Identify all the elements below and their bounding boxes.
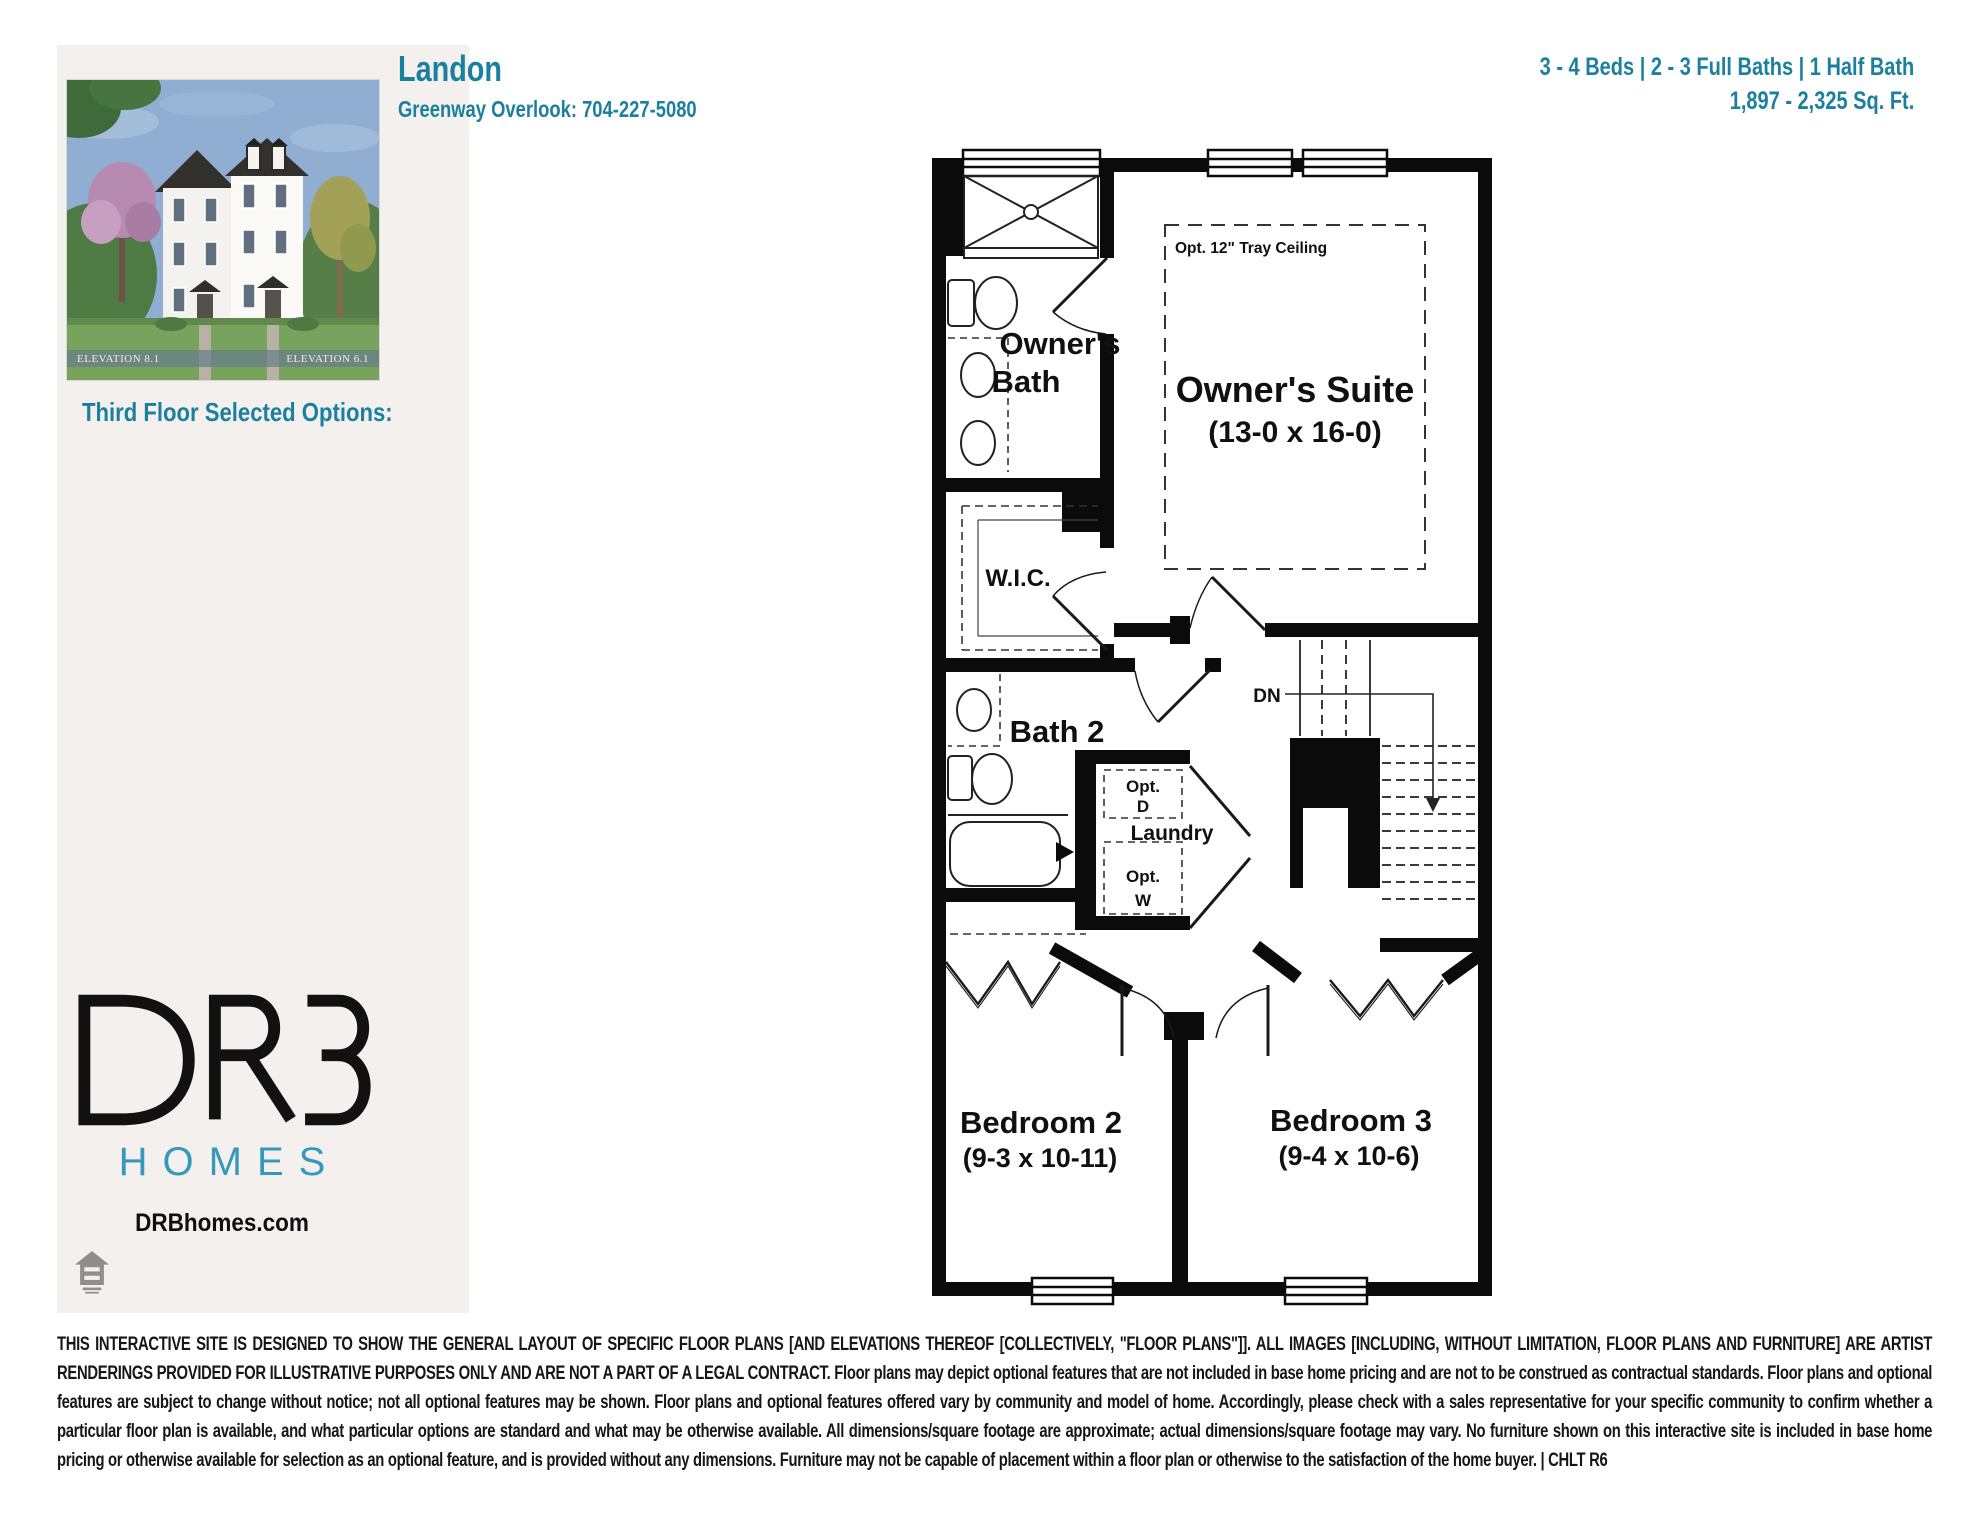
bath2-sink [948,674,1000,746]
owners-suite-dims: (13-0 x 16-0) [1208,416,1381,449]
owners-suite-label: Owner's Suite [1176,369,1415,410]
title-block: Landon Greenway Overlook: 704-227-5080 [398,48,771,123]
flyer-page: ELEVATION 8.1 ELEVATION 6.1 Third Floor … [0,0,1988,1536]
sidebar-panel: ELEVATION 8.1 ELEVATION 6.1 Third Floor … [57,45,469,1313]
bath2-tub [950,822,1074,886]
floor-plan: Owner's Bath Opt. 12" Tray Ceiling Owner… [900,140,1512,1310]
legal-disclaimer: THIS INTERACTIVE SITE IS DESIGNED TO SHO… [57,1330,1932,1475]
shower [964,176,1098,258]
specs-beds-baths: 3 - 4 Beds | 2 - 3 Full Baths | 1 Half B… [1539,50,1914,84]
owners-bath-label-2: Bath [992,364,1061,399]
elevation-rendering-image: ELEVATION 8.1 ELEVATION 6.1 [66,79,380,381]
laundry-opt-w-2: W [1135,891,1152,910]
elevation-left-label: ELEVATION 8.1 [77,353,160,365]
specs-sqft: 1,897 - 2,325 Sq. Ft. [1539,84,1914,118]
bedroom2-dims: (9-3 x 10-11) [963,1143,1118,1173]
owners-suite-door [1190,577,1265,630]
stairs-dn-label: DN [1253,686,1280,707]
stairs-treads [1382,746,1476,899]
elevation-right-label: ELEVATION 6.1 [286,353,369,365]
logo-website: DRBhomes.com [82,1209,363,1238]
stairs-upper-flight [1300,640,1370,736]
elevation-label-strip: ELEVATION 8.1 ELEVATION 6.1 [67,350,379,367]
owners-bath-door [1053,258,1107,334]
bedroom3-dims: (9-4 x 10-6) [1278,1141,1419,1171]
bath2-label: Bath 2 [1010,714,1105,749]
bedroom2-closet-bifold [946,962,1060,1004]
community-phone: Greenway Overlook: 704-227-5080 [398,96,697,123]
bath2-door [1135,670,1210,722]
bath2-toilet [948,754,1012,804]
bedroom3-door [1216,985,1268,1056]
plan-name: Landon [398,48,697,90]
tray-ceiling-label: Opt. 12" Tray Ceiling [1175,240,1327,257]
laundry-label: Laundry [1131,822,1214,845]
laundry-opt-d-2: D [1137,797,1149,816]
wic-label: W.I.C. [985,565,1050,592]
bedroom2-label: Bedroom 2 [960,1105,1122,1140]
drb-logo-letters [72,990,372,1130]
owners-bath-toilet [948,277,1017,329]
bedroom3-label: Bedroom 3 [1270,1103,1432,1138]
floor-plan-drawing: Owner's Bath Opt. 12" Tray Ceiling Owner… [900,140,1512,1310]
specs-block: 3 - 4 Beds | 2 - 3 Full Baths | 1 Half B… [1539,50,1914,118]
laundry-doors [1190,766,1250,928]
laundry-opt-d-1: Opt. [1126,777,1160,796]
equal-housing-icon [75,1251,109,1302]
house-rendering-illustration [67,80,379,380]
drb-homes-logo: HOMES DRBhomes.com [66,990,378,1238]
owners-bath-label-1: Owner's [999,326,1120,361]
logo-homes-text: HOMES [66,1140,378,1185]
wic-door [1053,572,1107,650]
selected-options-heading: Third Floor Selected Options: [82,397,393,428]
laundry-opt-w-1: Opt. [1126,867,1160,886]
owners-bath-sinks [961,353,995,465]
